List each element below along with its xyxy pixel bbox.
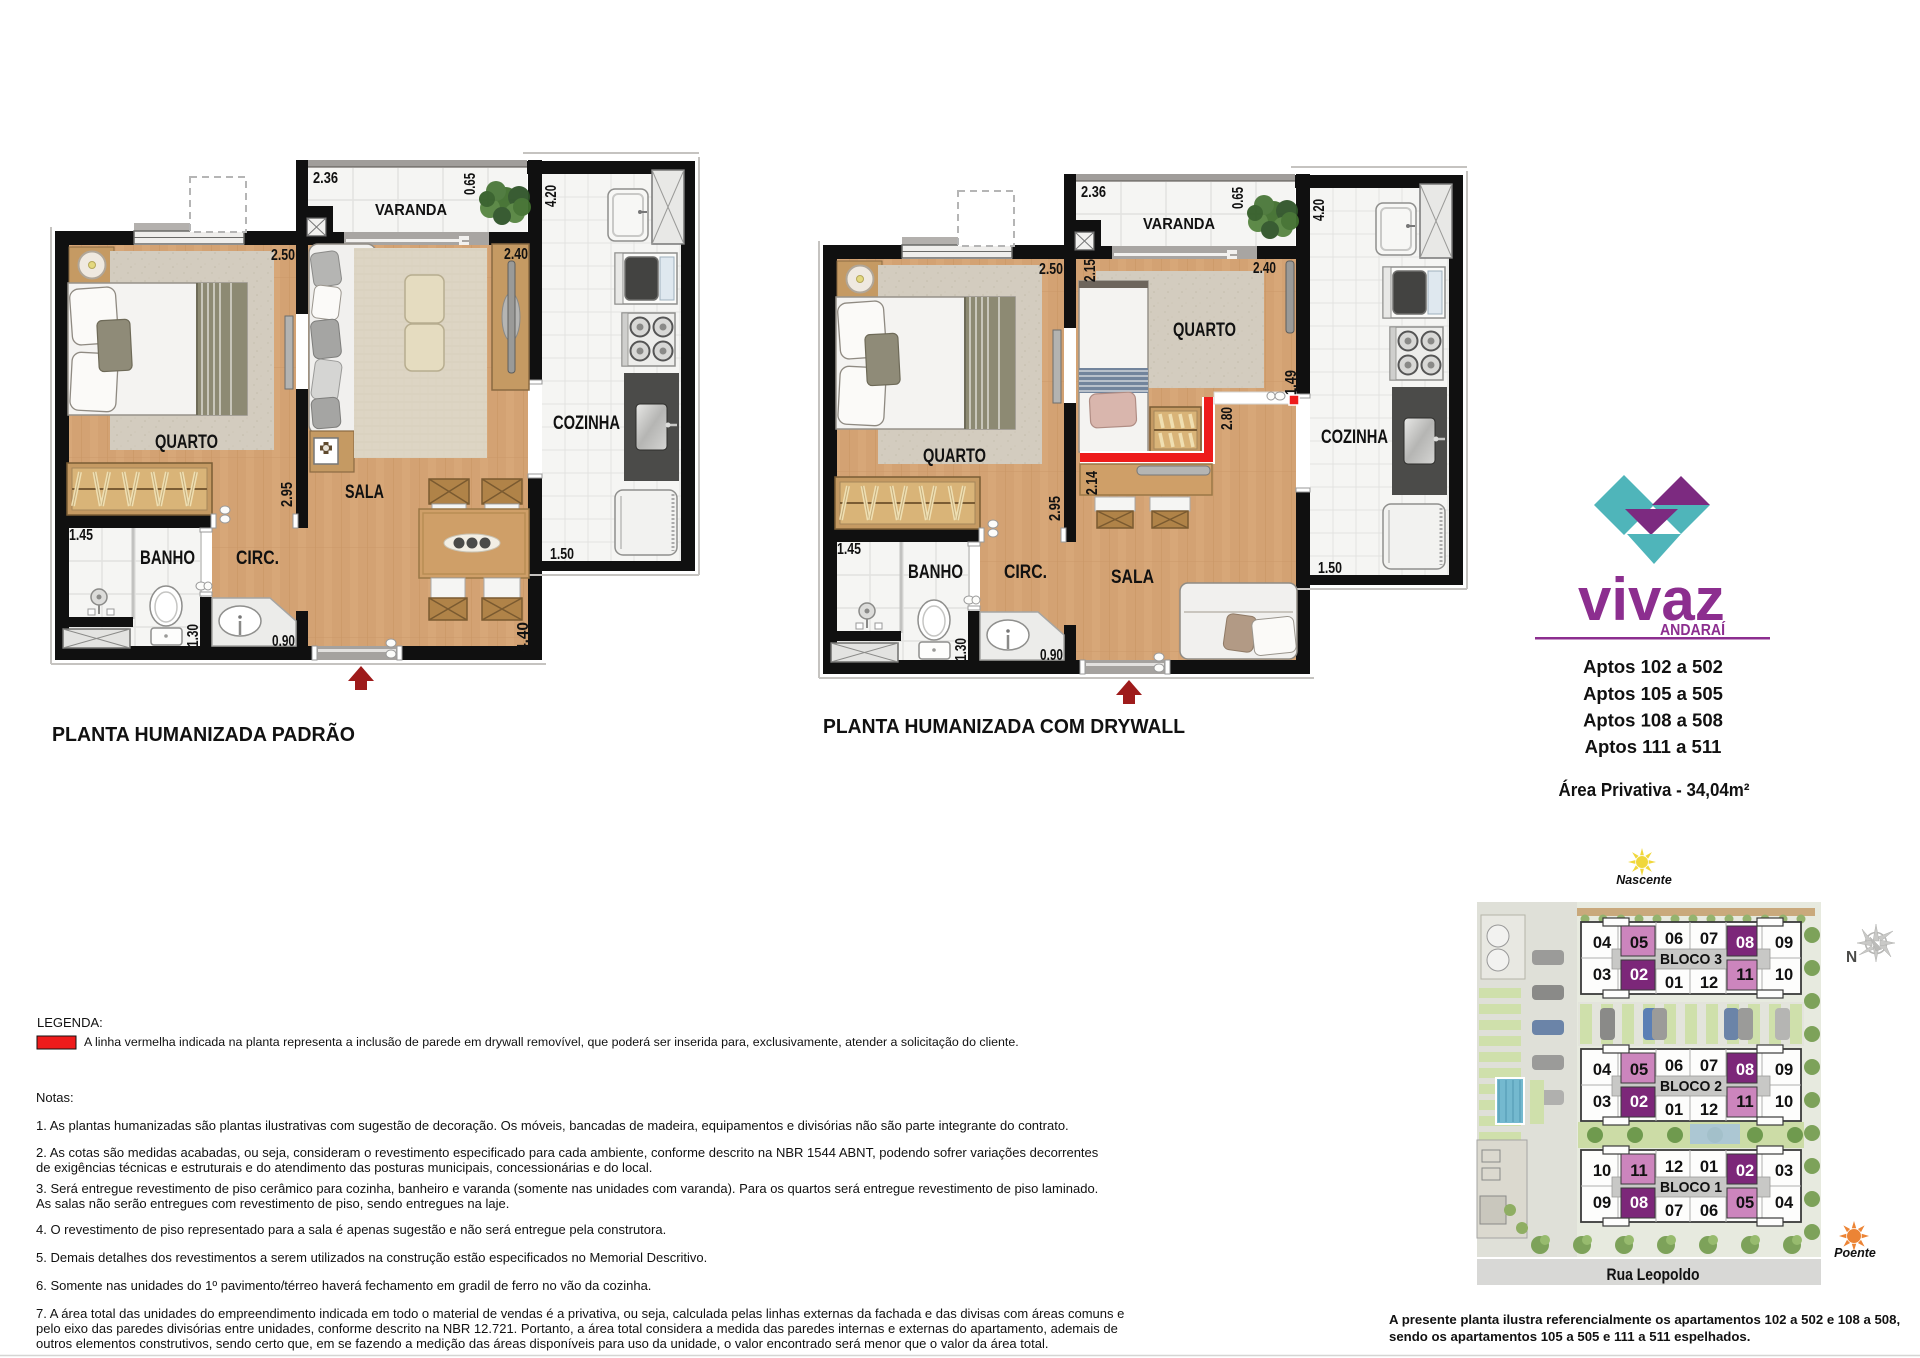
svg-text:3. Será entregue revestimento: 3. Será entregue revestimento de piso ce… <box>36 1181 1098 1196</box>
svg-text:03: 03 <box>1775 1162 1793 1180</box>
svg-text:PLANTA HUMANIZADA COM DRYWALL: PLANTA HUMANIZADA COM DRYWALL <box>823 716 1185 738</box>
svg-text:01: 01 <box>1665 974 1683 992</box>
svg-text:7. A área total das unidades d: 7. A área total das unidades do empreend… <box>36 1306 1124 1321</box>
svg-text:05: 05 <box>1630 1061 1648 1079</box>
svg-text:2.14: 2.14 <box>1084 471 1101 495</box>
svg-text:2.15: 2.15 <box>1082 259 1099 282</box>
svg-text:PLANTA HUMANIZADA PADRÃO: PLANTA HUMANIZADA PADRÃO <box>52 723 355 746</box>
svg-text:6. Somente nas unidades do 1º: 6. Somente nas unidades do 1º pavimento/… <box>36 1278 651 1293</box>
svg-text:SALA: SALA <box>345 482 384 503</box>
svg-text:QUARTO: QUARTO <box>1173 320 1236 341</box>
svg-text:07: 07 <box>1700 930 1718 948</box>
svg-text:sendo os apartamentos 105 a 50: sendo os apartamentos 105 a 505 e 111 a … <box>1389 1329 1750 1344</box>
svg-text:08: 08 <box>1630 1194 1648 1212</box>
svg-text:07: 07 <box>1700 1057 1718 1075</box>
svg-text:06: 06 <box>1665 1057 1683 1075</box>
svg-text:11: 11 <box>1736 966 1753 984</box>
svg-text:BLOCO 1: BLOCO 1 <box>1660 1179 1722 1196</box>
svg-text:LEGENDA:: LEGENDA: <box>37 1015 103 1030</box>
svg-text:2. As cotas são medidas acabad: 2. As cotas são medidas acabadas, ou sej… <box>36 1145 1099 1160</box>
svg-text:1. As plantas humanizadas são: 1. As plantas humanizadas são plantas il… <box>36 1118 1069 1133</box>
svg-text:02: 02 <box>1630 1093 1648 1111</box>
svg-text:07: 07 <box>1665 1202 1683 1220</box>
svg-text:08: 08 <box>1736 934 1754 952</box>
svg-text:4.40: 4.40 <box>515 622 532 652</box>
svg-text:outros elementos construtivos,: outros elementos construtivos, sendo cer… <box>36 1336 1048 1351</box>
svg-text:02: 02 <box>1630 966 1648 984</box>
svg-text:11: 11 <box>1736 1093 1753 1111</box>
svg-text:N: N <box>1846 949 1857 966</box>
svg-text:Área Privativa - 34,04m²: Área Privativa - 34,04m² <box>1559 779 1750 800</box>
svg-text:ANDARAÍ: ANDARAÍ <box>1660 622 1726 639</box>
svg-text:04: 04 <box>1593 1061 1612 1079</box>
svg-text:03: 03 <box>1593 1093 1611 1111</box>
svg-text:Rua Leopoldo: Rua Leopoldo <box>1607 1266 1700 1284</box>
svg-text:09: 09 <box>1775 934 1793 952</box>
svg-text:4. O revestimento de piso repr: 4. O revestimento de piso representado p… <box>36 1222 666 1237</box>
svg-text:10: 10 <box>1593 1162 1611 1180</box>
svg-text:Nascente: Nascente <box>1616 873 1672 887</box>
svg-text:01: 01 <box>1700 1158 1718 1176</box>
svg-text:04: 04 <box>1593 934 1612 952</box>
svg-text:1.49: 1.49 <box>1283 370 1300 395</box>
svg-text:12: 12 <box>1700 974 1718 992</box>
svg-text:08: 08 <box>1736 1061 1754 1079</box>
svg-text:BLOCO 2: BLOCO 2 <box>1660 1078 1722 1095</box>
svg-text:09: 09 <box>1775 1061 1793 1079</box>
svg-text:06: 06 <box>1700 1202 1718 1220</box>
svg-text:Aptos 102 a 502: Aptos 102 a 502 <box>1583 656 1723 677</box>
svg-text:BLOCO 3: BLOCO 3 <box>1660 951 1722 968</box>
svg-text:Notas:: Notas: <box>36 1090 74 1105</box>
svg-text:de exigências técnicas e estru: de exigências técnicas e estruturais e d… <box>36 1160 652 1175</box>
svg-text:09: 09 <box>1593 1194 1611 1212</box>
svg-text:2.80: 2.80 <box>1219 407 1236 430</box>
svg-text:5. Demais detalhes dos revesti: 5. Demais detalhes dos revestimentos a s… <box>36 1250 707 1265</box>
svg-text:Aptos 108 a 508: Aptos 108 a 508 <box>1583 710 1723 731</box>
svg-text:2.40: 2.40 <box>504 246 528 263</box>
svg-text:06: 06 <box>1665 930 1683 948</box>
svg-text:03: 03 <box>1593 966 1611 984</box>
svg-text:10: 10 <box>1775 1093 1793 1111</box>
svg-text:2.40: 2.40 <box>1253 260 1276 277</box>
svg-text:05: 05 <box>1736 1194 1754 1212</box>
svg-text:01: 01 <box>1665 1101 1683 1119</box>
svg-text:Aptos 111 a 511: Aptos 111 a 511 <box>1585 736 1722 757</box>
svg-text:04: 04 <box>1775 1194 1794 1212</box>
svg-text:10: 10 <box>1775 966 1793 984</box>
svg-text:Aptos 105 a 505: Aptos 105 a 505 <box>1583 683 1723 704</box>
svg-text:12: 12 <box>1665 1158 1683 1176</box>
svg-text:pelo eixo das paredes divisóri: pelo eixo das paredes divisórias entre u… <box>36 1321 1118 1336</box>
svg-text:SALA: SALA <box>1111 567 1154 588</box>
svg-text:11: 11 <box>1630 1162 1647 1180</box>
svg-text:A presente planta ilustra refe: A presente planta ilustra referencialmen… <box>1389 1312 1900 1327</box>
svg-text:05: 05 <box>1630 934 1648 952</box>
svg-text:A linha vermelha indicada na p: A linha vermelha indicada na planta repr… <box>84 1035 1019 1049</box>
svg-text:Poente: Poente <box>1834 1246 1876 1260</box>
svg-text:As salas não serão entregues c: As salas não serão entregues com revesti… <box>36 1196 509 1211</box>
svg-text:12: 12 <box>1700 1101 1718 1119</box>
svg-text:02: 02 <box>1736 1162 1754 1180</box>
